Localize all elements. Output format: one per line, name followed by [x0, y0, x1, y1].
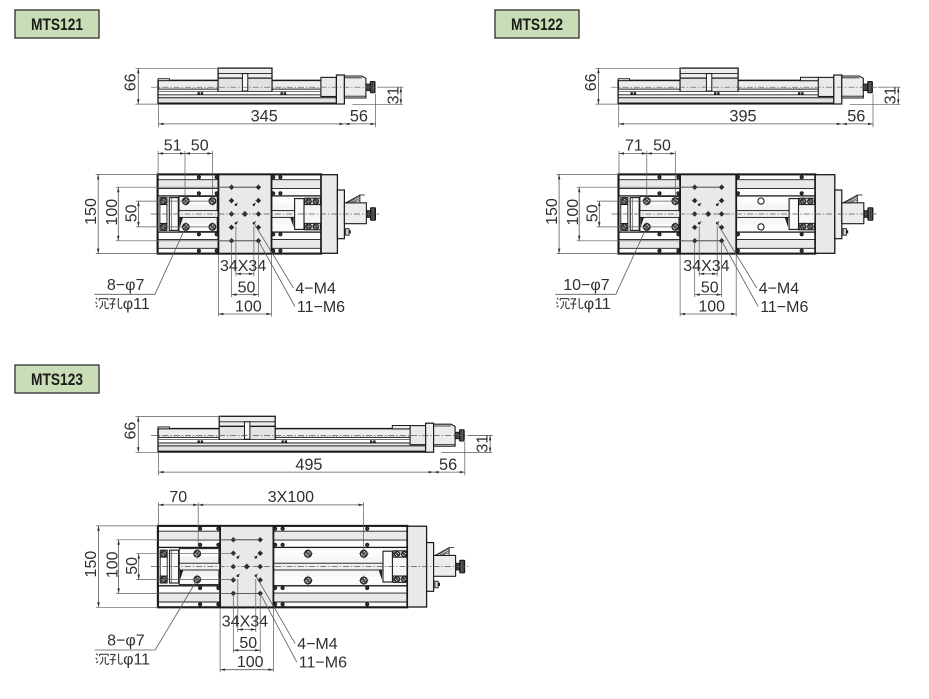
- svg-text:395: 395: [729, 108, 756, 126]
- svg-text:71: 71: [625, 138, 643, 155]
- svg-text:100: 100: [104, 199, 121, 226]
- svg-text:100: 100: [104, 551, 121, 578]
- svg-text:11−M6: 11−M6: [297, 299, 345, 316]
- svg-text:50: 50: [124, 557, 141, 575]
- svg-text:66: 66: [123, 73, 140, 91]
- svg-text:34X34: 34X34: [683, 258, 729, 275]
- svg-text:100: 100: [698, 299, 725, 316]
- svg-text:50: 50: [239, 635, 257, 652]
- svg-text:100: 100: [237, 654, 264, 671]
- svg-text:8−φ7: 8−φ7: [107, 277, 145, 294]
- svg-text:56: 56: [350, 108, 368, 126]
- svg-text:50: 50: [191, 138, 209, 155]
- svg-text:50: 50: [124, 204, 141, 222]
- svg-text:MTS122: MTS122: [511, 16, 563, 34]
- svg-text:100: 100: [565, 199, 582, 226]
- svg-text:11−M6: 11−M6: [760, 299, 808, 316]
- svg-text:φ11: φ11: [123, 296, 150, 313]
- svg-text:150: 150: [83, 551, 100, 578]
- svg-text:495: 495: [295, 456, 322, 474]
- svg-text:φ11: φ11: [123, 652, 150, 669]
- svg-text:66: 66: [583, 73, 600, 91]
- svg-text:51: 51: [164, 138, 182, 155]
- svg-text:11−M6: 11−M6: [299, 655, 347, 672]
- svg-text:100: 100: [235, 299, 262, 316]
- svg-text:4−M4: 4−M4: [759, 280, 800, 297]
- svg-text:10−φ7: 10−φ7: [563, 277, 610, 294]
- svg-text:70: 70: [169, 489, 187, 506]
- svg-text:56: 56: [847, 108, 865, 126]
- svg-text:4−M4: 4−M4: [297, 636, 338, 653]
- svg-text:50: 50: [238, 280, 256, 297]
- svg-text:φ11: φ11: [584, 296, 611, 313]
- svg-text:56: 56: [439, 456, 457, 474]
- svg-text:31: 31: [385, 87, 402, 105]
- svg-text:34X34: 34X34: [220, 258, 266, 275]
- svg-text:34X34: 34X34: [222, 614, 268, 631]
- svg-text:150: 150: [544, 198, 561, 225]
- svg-text:50: 50: [653, 138, 671, 155]
- svg-text:31: 31: [883, 87, 900, 105]
- svg-text:MTS121: MTS121: [31, 16, 83, 34]
- svg-text:50: 50: [585, 204, 602, 222]
- svg-text:50: 50: [701, 280, 719, 297]
- svg-text:MTS123: MTS123: [31, 371, 83, 389]
- svg-text:4−M4: 4−M4: [295, 280, 336, 297]
- svg-text:8−φ7: 8−φ7: [107, 633, 145, 650]
- svg-text:3X100: 3X100: [268, 489, 314, 506]
- svg-text:345: 345: [251, 108, 278, 126]
- svg-text:150: 150: [83, 198, 100, 225]
- svg-text:31: 31: [475, 435, 492, 453]
- svg-text:66: 66: [123, 422, 140, 440]
